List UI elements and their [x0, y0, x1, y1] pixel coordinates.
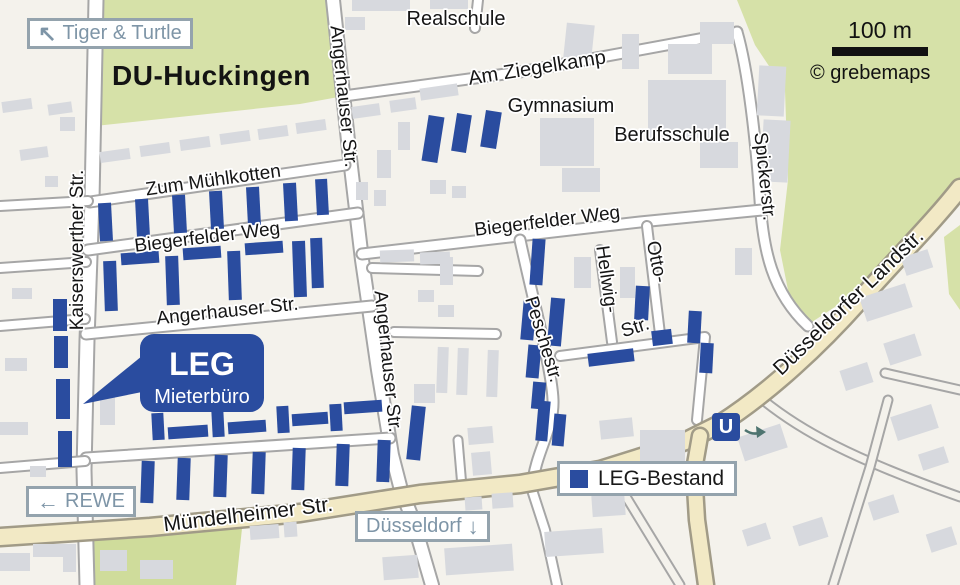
building [544, 528, 604, 557]
building [377, 150, 391, 178]
green-area-park-east-edge [944, 225, 960, 310]
scale-label: 100 m [832, 17, 928, 44]
sign-rewe: ← REWE [26, 486, 136, 517]
leg-building [292, 241, 307, 297]
leg-building [227, 251, 242, 300]
leg-building [480, 110, 502, 149]
leg-building [283, 183, 298, 222]
leg-building [228, 420, 267, 435]
building [640, 430, 685, 463]
leg-building [651, 329, 673, 346]
building [492, 492, 514, 508]
building [45, 176, 58, 187]
building [99, 148, 130, 163]
street-label: Am Ziegelkamp [467, 46, 608, 89]
building [430, 180, 446, 194]
callout-subtitle: Mieterbüro [154, 386, 250, 408]
building [440, 257, 453, 285]
building [456, 348, 469, 395]
leg-building [103, 261, 118, 311]
building [700, 22, 734, 44]
building [591, 494, 625, 517]
building [793, 517, 829, 547]
building [345, 17, 365, 30]
building [179, 136, 210, 151]
leg-building [422, 115, 445, 163]
scale-bar [832, 47, 928, 56]
street-label: Hellwig- [591, 244, 621, 314]
building [250, 524, 280, 540]
leg-building [329, 404, 342, 432]
building [374, 190, 386, 206]
building [5, 358, 27, 371]
leg-building [687, 311, 702, 344]
building [33, 544, 67, 557]
building [918, 446, 949, 471]
leg-building [344, 400, 383, 415]
leg-building [165, 256, 180, 305]
building [868, 494, 900, 520]
leg-building [209, 191, 224, 230]
leg-building [168, 425, 209, 440]
leg-building [213, 455, 227, 497]
u-bahn-badge: U [712, 413, 740, 441]
callout-title: LEG [169, 346, 235, 382]
leg-building [406, 405, 426, 460]
building [398, 122, 410, 150]
building [140, 560, 173, 579]
leg-building [291, 448, 305, 490]
legend-swatch [570, 470, 588, 488]
building [257, 125, 288, 140]
legend-box: LEG-Bestand [557, 461, 737, 496]
district-title: DU-Huckingen [112, 60, 311, 92]
building [100, 396, 115, 425]
building [742, 523, 771, 547]
building [926, 526, 958, 552]
building [380, 249, 414, 262]
building [0, 553, 30, 571]
leg-building [56, 379, 70, 419]
building [12, 288, 32, 299]
building [486, 350, 499, 397]
leg-building [151, 413, 164, 441]
building [735, 248, 752, 275]
building [890, 404, 939, 441]
building [414, 384, 435, 403]
sign-tiger-turtle-label: Tiger & Turtle [62, 22, 181, 45]
road-culdesac-1 [372, 268, 478, 271]
leg-building [251, 452, 265, 494]
building [668, 44, 712, 74]
building [0, 422, 28, 435]
leg-building [135, 199, 150, 238]
building [219, 130, 250, 145]
street-label: Berufsschule [614, 124, 730, 146]
building [352, 0, 410, 11]
leg-building [140, 461, 154, 503]
legend-label: LEG-Bestand [598, 467, 724, 491]
building [30, 466, 46, 477]
road-ne-stub [885, 373, 960, 390]
sign-duesseldorf: Düsseldorf ↓ [355, 511, 490, 542]
building [63, 544, 76, 572]
building [436, 347, 449, 393]
building [883, 333, 921, 365]
leg-building [246, 187, 261, 226]
building [389, 97, 416, 113]
map-stage[interactable]: Zum MühlkottenBiegerfelder WegAngerhause… [0, 0, 960, 585]
road-se-road-3 [625, 495, 680, 585]
building [757, 65, 787, 116]
sign-rewe-label: REWE [65, 490, 125, 513]
building [599, 417, 634, 439]
building [540, 118, 594, 166]
building [444, 544, 514, 576]
leg-building [310, 238, 324, 288]
leg-building [529, 239, 545, 286]
leg-building [292, 412, 329, 426]
building [471, 451, 492, 476]
leg-building [58, 431, 72, 467]
road-se-road-2 [833, 400, 888, 585]
street-label: Gymnasium [508, 95, 615, 117]
building [382, 555, 419, 580]
arrow-up-left-icon: ↖ [38, 23, 56, 45]
copyright: © grebemaps [810, 62, 930, 85]
building [356, 182, 368, 200]
leg-building [376, 440, 390, 482]
building [622, 34, 639, 69]
leg-building [315, 179, 329, 216]
building [839, 362, 873, 391]
leg-building [276, 406, 289, 434]
building [418, 290, 434, 302]
leg-building [335, 444, 349, 486]
building [1, 98, 32, 113]
building [19, 146, 48, 161]
building [452, 186, 466, 198]
building [562, 168, 600, 192]
building [100, 550, 127, 571]
leg-building [172, 195, 187, 234]
road-culdesac-2 [394, 332, 496, 334]
leg-building [531, 381, 546, 409]
building [574, 257, 591, 288]
leg-building [54, 336, 68, 368]
street-label: Otto- [642, 239, 671, 285]
building [295, 119, 326, 134]
arrow-down-icon: ↓ [468, 516, 479, 538]
building [465, 496, 483, 510]
leg-building [451, 113, 472, 153]
leg-building [98, 203, 113, 242]
building [60, 117, 75, 131]
building [620, 267, 635, 298]
sign-tiger-turtle: ↖ Tiger & Turtle [27, 18, 193, 49]
leg-building [53, 299, 67, 331]
arrow-left-icon: ← [37, 491, 59, 513]
building [283, 522, 297, 538]
leg-building [245, 241, 284, 256]
building [47, 101, 72, 115]
building [438, 305, 454, 317]
sign-duesseldorf-label: Düsseldorf [366, 515, 462, 538]
leg-building [699, 343, 714, 374]
u-bahn-arrow-icon [743, 423, 769, 441]
leg-building [211, 410, 224, 438]
building [139, 142, 170, 157]
street-label: Kaiserswerther Str. [67, 170, 88, 331]
street-label: Realschule [407, 8, 506, 30]
building [467, 426, 493, 445]
leg-building [176, 458, 190, 500]
